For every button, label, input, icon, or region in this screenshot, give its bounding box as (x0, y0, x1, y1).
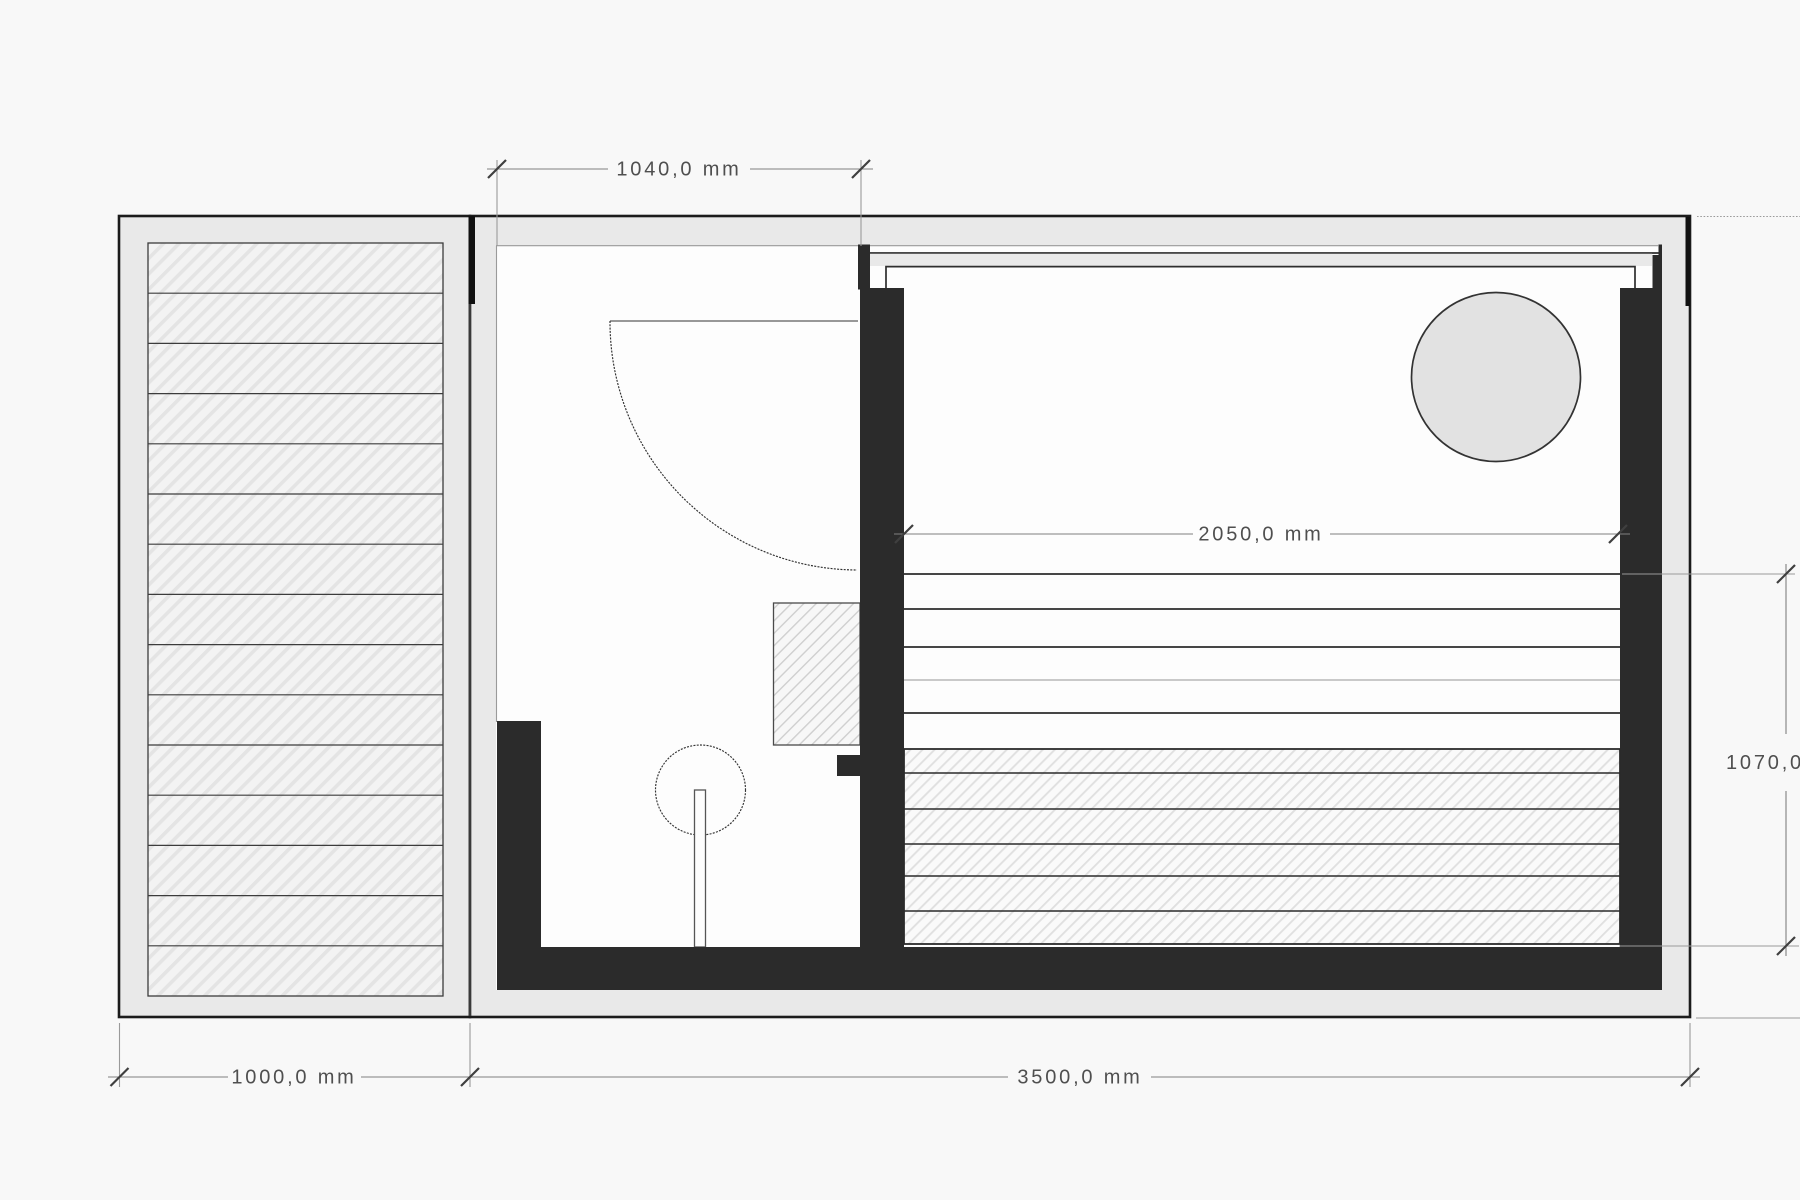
svg-text:1070,0 mm: 1070,0 mm (1726, 752, 1800, 774)
svg-text:2050,0 mm: 2050,0 mm (1198, 524, 1323, 546)
svg-text:1040,0 mm: 1040,0 mm (616, 159, 741, 181)
svg-text:3500,0 mm: 3500,0 mm (1017, 1067, 1142, 1089)
svg-text:1000,0 mm: 1000,0 mm (231, 1067, 356, 1089)
